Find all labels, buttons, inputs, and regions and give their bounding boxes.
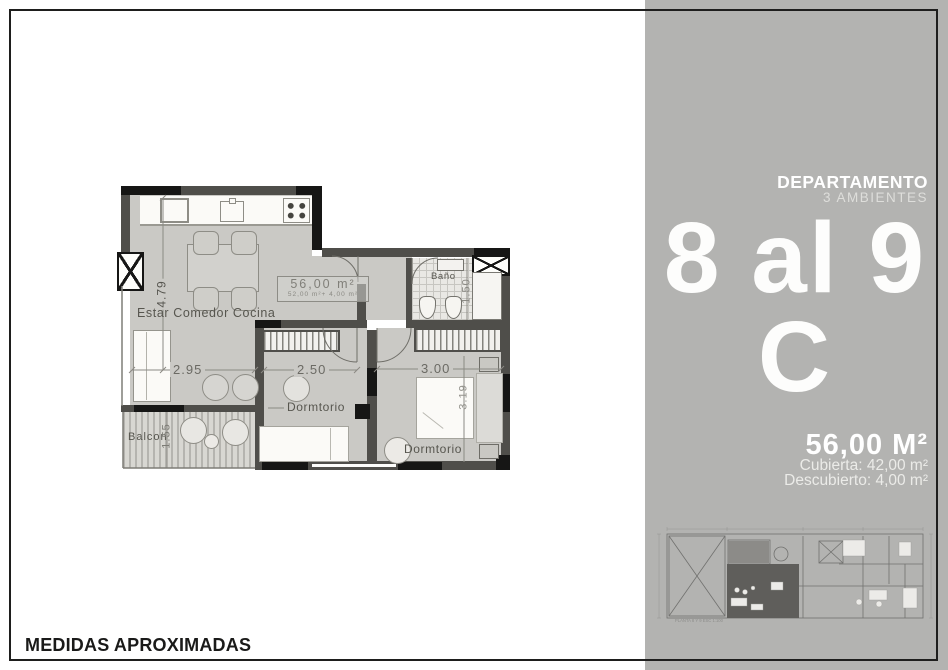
flyer-page: 56,00 m² 52,00 m²+ 4,00 m² Estar Comedor… — [0, 0, 948, 670]
page-border — [9, 9, 938, 661]
